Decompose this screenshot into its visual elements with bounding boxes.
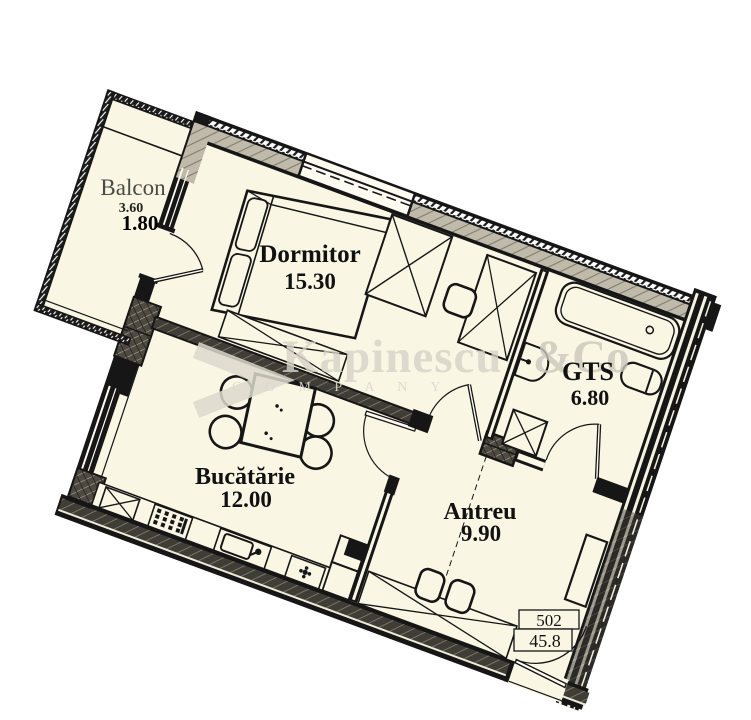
svg-text:GTS: GTS xyxy=(562,357,614,386)
svg-text:15.30: 15.30 xyxy=(284,269,336,294)
svg-text:Balcon: Balcon xyxy=(100,175,166,200)
svg-text:9.90: 9.90 xyxy=(461,521,501,546)
svg-text:12.00: 12.00 xyxy=(220,487,272,512)
svg-text:Dormitor: Dormitor xyxy=(259,241,360,268)
svg-text:6.80: 6.80 xyxy=(571,385,610,410)
svg-text:C O M P A N Y: C O M P A N Y xyxy=(232,380,450,395)
svg-text:502: 502 xyxy=(536,611,562,630)
svg-text:Kapinescu: Kapinescu xyxy=(282,331,503,383)
svg-text:1.80: 1.80 xyxy=(122,211,159,235)
svg-text:45.8: 45.8 xyxy=(529,631,561,651)
